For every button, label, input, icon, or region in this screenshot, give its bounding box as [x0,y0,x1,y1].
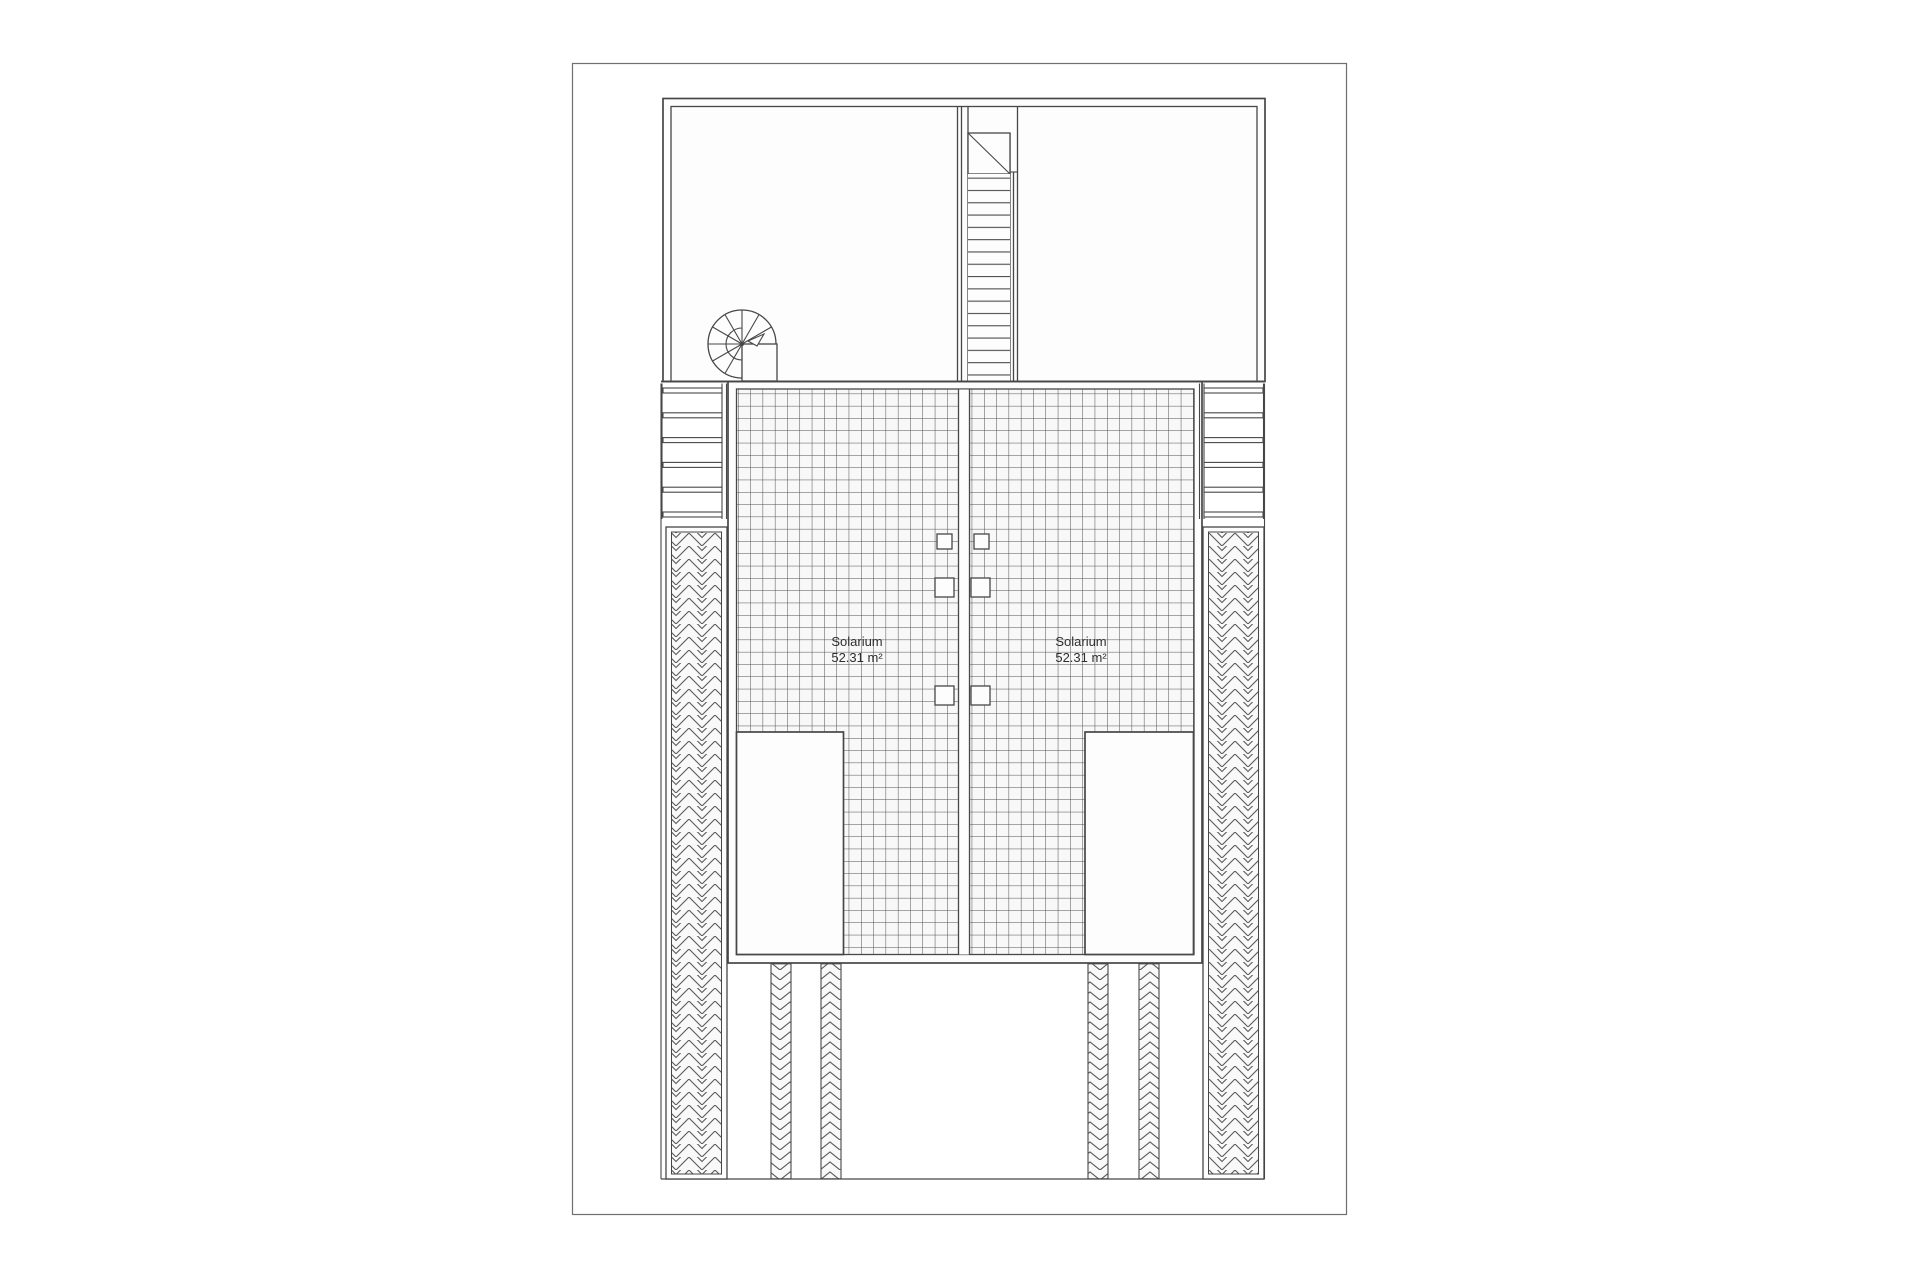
solarium-left-area: 52.31 m² [831,650,883,665]
solarium-right-label: Solarium [1055,634,1106,649]
spiral-stair-landing [742,344,777,381]
floor-plan-page: Solarium 52.31 m² Solarium 52.31 m² [0,0,1920,1280]
stair-treads [968,174,1010,382]
herringbone-strip-left [666,527,727,1179]
straight-staircase [968,107,1018,382]
solarium-left-label: Solarium [831,634,882,649]
herringbone-strip-right [1203,527,1264,1179]
party-wall [959,390,970,955]
roof-opening-right [1085,732,1194,955]
solarium-right-area: 52.31 m² [1055,650,1107,665]
roof-opening-left [737,732,844,955]
solarium-terraces: Solarium 52.31 m² Solarium 52.31 m² [728,382,1202,964]
floor-plan-drawing: Solarium 52.31 m² Solarium 52.31 m² [0,0,1920,1280]
